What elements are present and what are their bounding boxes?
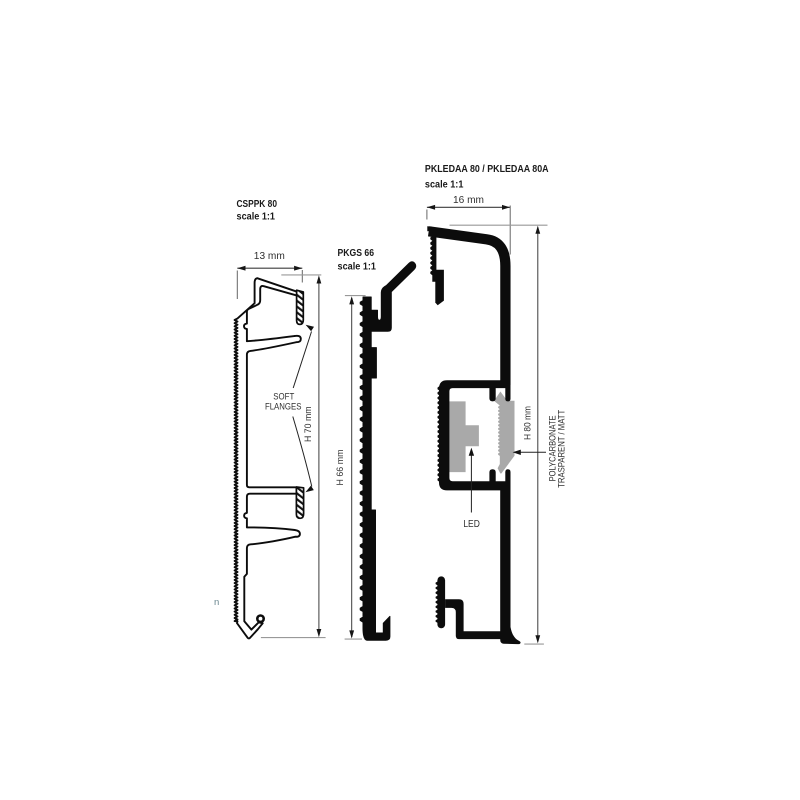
svg-text:FLANGES: FLANGES (265, 401, 302, 412)
svg-text:16 mm: 16 mm (453, 195, 484, 206)
svg-text:PKGS 66: PKGS 66 (338, 247, 375, 259)
svg-text:H 80 mm: H 80 mm (522, 406, 533, 440)
svg-text:scale 1:1: scale 1:1 (237, 211, 276, 223)
svg-text:PKLEDAA 80 / PKLEDAA 80A: PKLEDAA 80 / PKLEDAA 80A (425, 163, 549, 175)
svg-text:H 66 mm: H 66 mm (335, 449, 346, 485)
svg-text:H 70 mm: H 70 mm (303, 406, 314, 442)
svg-text:scale 1:1: scale 1:1 (425, 178, 464, 190)
svg-text:scale 1:1: scale 1:1 (338, 260, 377, 272)
svg-text:13 mm: 13 mm (254, 251, 285, 262)
svg-text:TRASPARENT / MATT: TRASPARENT / MATT (557, 409, 567, 487)
svg-text:CSPPK 80: CSPPK 80 (237, 198, 278, 210)
svg-text:n: n (214, 597, 219, 608)
svg-text:LED: LED (463, 519, 480, 530)
